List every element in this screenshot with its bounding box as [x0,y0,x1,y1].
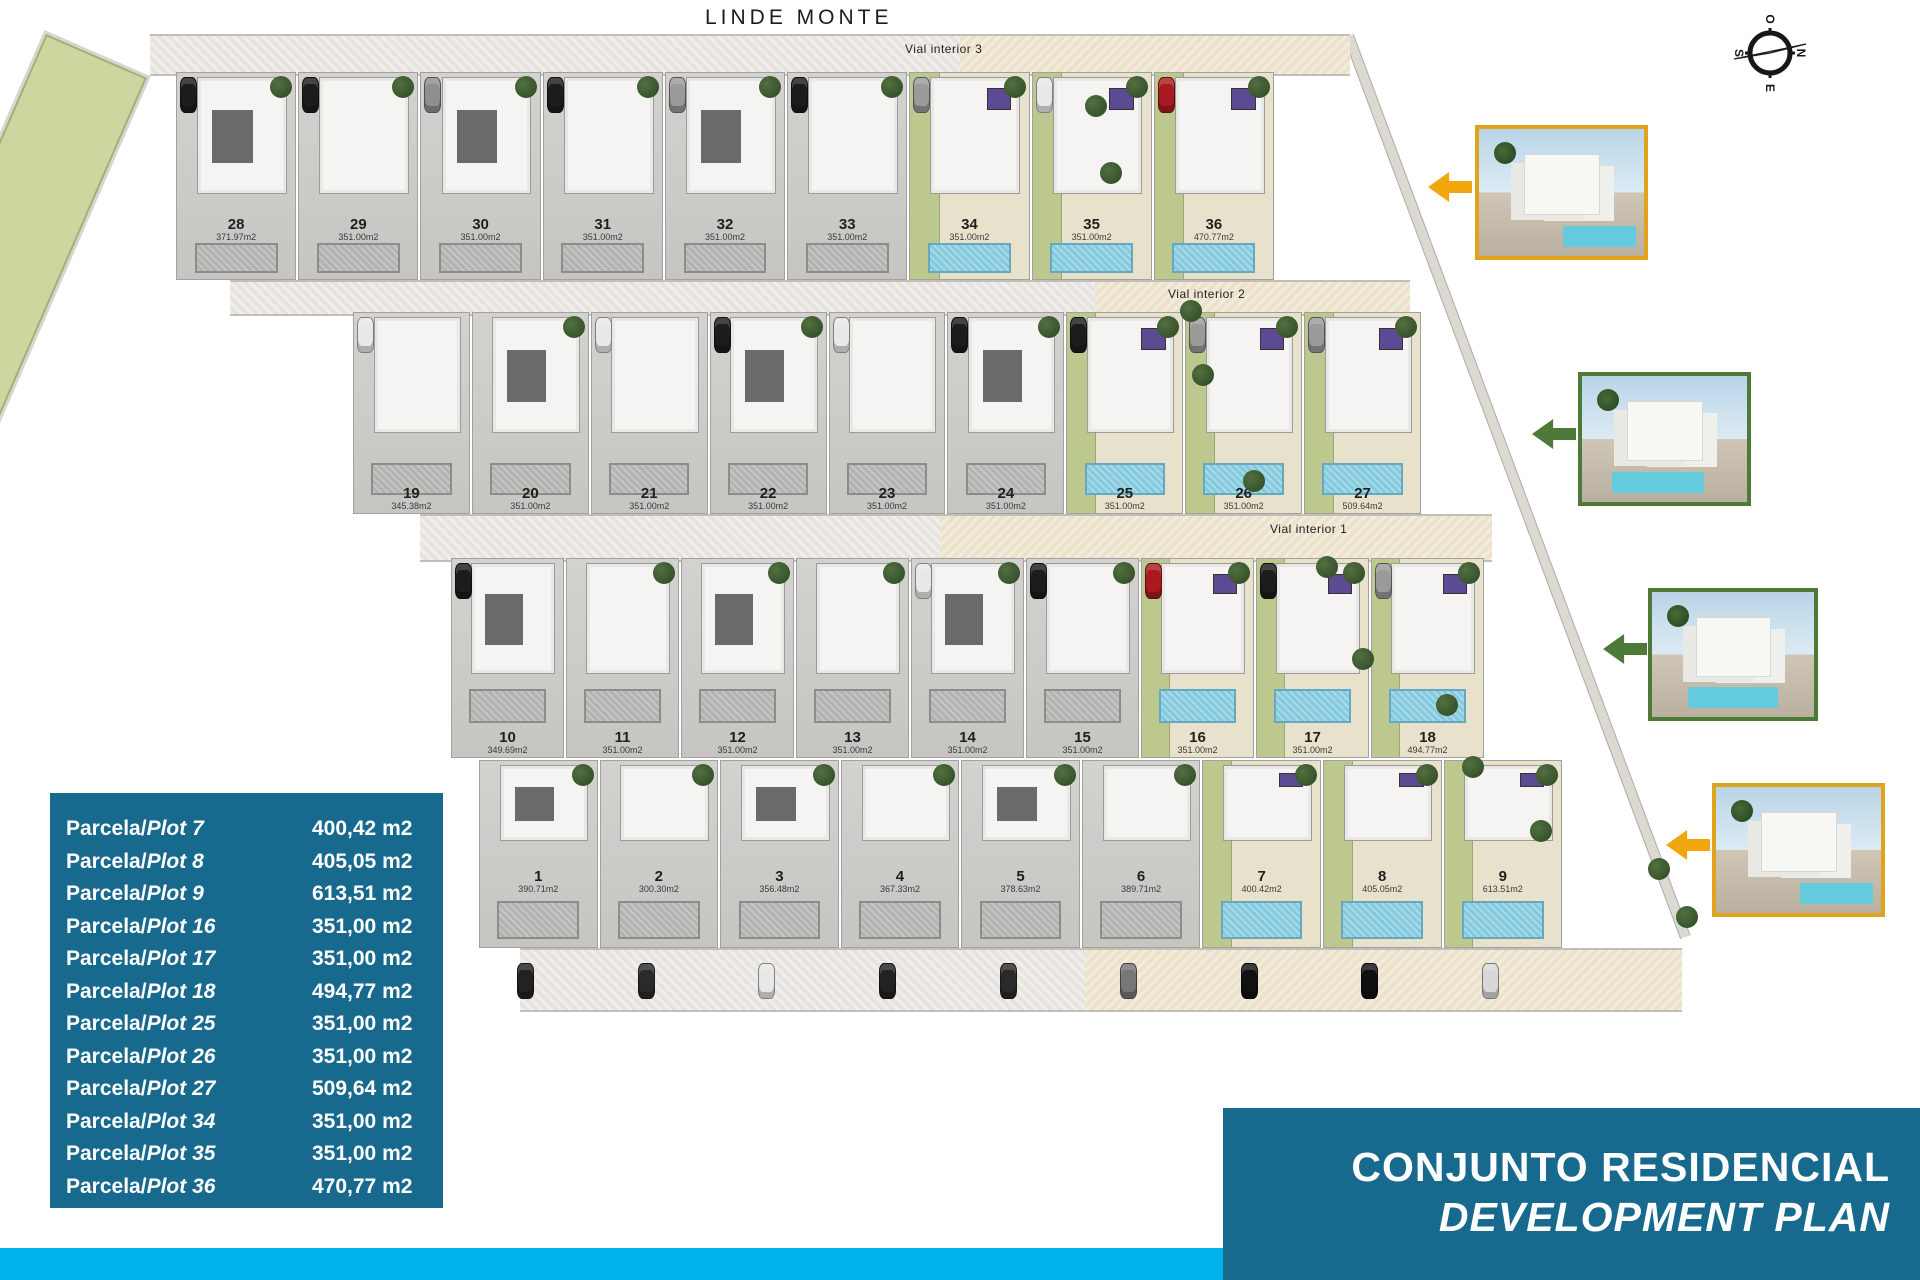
pool [684,243,767,273]
road-label-vial-2: Vial interior 2 [1168,287,1245,301]
plot-number: 28 [177,217,295,233]
car-icon [302,77,319,113]
tree-icon [1436,694,1458,716]
plot-label: 6389.71m2 [1083,869,1200,894]
tree-icon [1462,756,1484,778]
plot-4: 4367.33m2 [841,760,960,948]
pool [317,243,400,273]
legend-label-prefix: Parcela/ [66,947,147,970]
plot-area: 351.00m2 [1033,233,1151,242]
plot-number: 7 [1203,869,1320,885]
legend-label-plot: Plot 7 [147,817,204,840]
pool [980,901,1062,939]
plot-area: 389.71m2 [1083,885,1200,894]
tree-icon [1248,76,1270,98]
plot-area: 351.00m2 [948,502,1063,511]
pool [469,689,547,723]
tree-icon [653,562,675,584]
legend-row: Parcela/Plot 34 351,00 m2 [66,1106,443,1139]
plot-number: 12 [682,730,793,746]
legend-row: Parcela/Plot 17 351,00 m2 [66,943,443,976]
plot-number: 18 [1372,730,1483,746]
legend-area-value: 351,00 m2 [312,1041,412,1074]
plot-area: 351.00m2 [1257,746,1368,755]
plot-area: 300.30m2 [601,885,718,894]
legend-label-prefix: Parcela/ [66,1110,147,1133]
legend-area-value: 351,00 m2 [312,1106,412,1139]
plot-number: 26 [1186,486,1301,502]
car-icon [1189,317,1206,353]
tree-icon [1243,470,1265,492]
car-icon [1145,563,1162,599]
tree-icon [1648,858,1670,880]
legend-area-value: 494,77 m2 [312,976,412,1009]
svg-text:N: N [1794,49,1807,58]
plot-label: 1390.71m2 [480,869,597,894]
plot-10: 10349.69m2 [451,558,564,758]
plot-area: 351.00m2 [1142,746,1253,755]
plot-number: 35 [1033,217,1151,233]
svg-text:S: S [1733,49,1746,57]
road-top-beige [960,36,1350,74]
plot-area: 351.00m2 [1027,746,1138,755]
pool [806,243,889,273]
plot-label: 5378.63m2 [962,869,1079,894]
pool [1172,243,1255,273]
tree-icon [1530,820,1552,842]
legend-label-prefix: Parcela/ [66,850,147,873]
car-icon [791,77,808,113]
pool [1044,689,1122,723]
plot-number: 31 [544,217,662,233]
villa-house-shape [1696,617,1771,677]
plot-area: 613.51m2 [1445,885,1562,894]
plot-area: 400.42m2 [1203,885,1320,894]
car-icon [1036,77,1053,113]
plot-area: 367.33m2 [842,885,959,894]
tree-icon [1295,764,1317,786]
development-plan-canvas: LINDE MONTE O N E S Vial interior 3 Vial… [0,0,1920,1280]
plot-number: 23 [830,486,945,502]
tree-icon [1458,562,1480,584]
plot-label: 15351.00m2 [1027,730,1138,755]
plot-area: 351.00m2 [666,233,784,242]
legend-label-prefix: Parcela/ [66,882,147,905]
plot-area: 378.63m2 [962,885,1079,894]
plot-area: 351.00m2 [421,233,539,242]
pool [1221,901,1303,939]
house-footprint [611,317,698,433]
plot-32: 32351.00m2 [665,72,785,280]
pool [814,689,892,723]
plot-number: 24 [948,486,1063,502]
car-icon [1260,563,1277,599]
villa-house-shape [1761,812,1837,872]
plot-label: 12351.00m2 [682,730,793,755]
plot-label: 36470.77m2 [1155,217,1273,242]
plot-29: 29351.00m2 [298,72,418,280]
pool [584,689,662,723]
pool [497,901,579,939]
car-icon [547,77,564,113]
legend-area-value: 405,05 m2 [312,846,412,879]
tree-icon [1157,316,1179,338]
car-icon [1030,563,1047,599]
car-icon [1241,963,1258,999]
plot-20: 20351.00m2 [472,312,589,514]
plot-area: 351.00m2 [473,502,588,511]
legend-row: Parcela/Plot 27 509,64 m2 [66,1073,443,1106]
plot-number: 16 [1142,730,1253,746]
car-icon [638,963,655,999]
legend-row: Parcela/Plot 35 351,00 m2 [66,1138,443,1171]
plot-area: 351.00m2 [1067,502,1182,511]
plot-label: 16351.00m2 [1142,730,1253,755]
plot-row-1-9: 1390.71m22300.30m23356.48m24367.33m25378… [478,760,1563,948]
plot-label: 7400.42m2 [1203,869,1320,894]
pool [739,901,821,939]
plot-area: 351.00m2 [912,746,1023,755]
plot-16: 16351.00m2 [1141,558,1254,758]
plot-area: 345.38m2 [354,502,469,511]
plot-label: 9613.51m2 [1445,869,1562,894]
plot-area: 470.77m2 [1155,233,1273,242]
tree-icon [572,764,594,786]
plot-number: 8 [1324,869,1441,885]
road-label-vial-3: Vial interior 3 [905,42,982,56]
legend-row: Parcela/Plot 16 351,00 m2 [66,911,443,944]
plot-label: 27509.64m2 [1305,486,1420,511]
road-top [150,34,1350,76]
legend-row: Parcela/Plot 36 470,77 m2 [66,1171,443,1204]
plot-12: 12351.00m2 [681,558,794,758]
legend-label-plot: Plot 25 [147,1012,216,1035]
tree-icon [1004,76,1026,98]
plot-34: 34351.00m2 [909,72,1029,280]
plot-2: 2300.30m2 [600,760,719,948]
plot-11: 11351.00m2 [566,558,679,758]
legend-label-plot: Plot 8 [147,850,204,873]
legend-label-plot: Plot 35 [147,1142,216,1165]
car-icon [1361,963,1378,999]
legend-area-value: 351,00 m2 [312,943,412,976]
plot-label: 23351.00m2 [830,486,945,511]
plot-number: 22 [711,486,826,502]
compass-rose-icon: O N E S [1733,6,1807,103]
road-label-vial-1: Vial interior 1 [1270,522,1347,536]
car-icon [1070,317,1087,353]
plot-23: 23351.00m2 [829,312,946,514]
legend-label-plot: Plot 17 [147,947,216,970]
plot-6: 6389.71m2 [1082,760,1201,948]
car-icon [455,563,472,599]
plot-number: 20 [473,486,588,502]
car-icon [1375,563,1392,599]
road-bottom [520,948,1682,1012]
plot-number: 19 [354,486,469,502]
arrow-left-icon-2 [1532,419,1576,449]
plot-9: 9613.51m2 [1444,760,1563,948]
plot-25: 25351.00m2 [1066,312,1183,514]
tree-icon [801,316,823,338]
house-footprint [374,317,461,433]
plot-14: 14351.00m2 [911,558,1024,758]
plot-30: 30351.00m2 [420,72,540,280]
plot-number: 29 [299,217,417,233]
plot-number: 10 [452,730,563,746]
svg-text:E: E [1763,84,1777,92]
plot-number: 30 [421,217,539,233]
plot-36: 36470.77m2 [1154,72,1274,280]
plot-22: 22351.00m2 [710,312,827,514]
pool [1462,901,1544,939]
tree-icon [270,76,292,98]
title-line-spanish: CONJUNTO RESIDENCIAL [1223,1142,1890,1192]
road-vial-2-beige [1095,282,1410,314]
accent-strip [0,1248,1223,1280]
plot-area: 351.00m2 [910,233,1028,242]
car-icon [595,317,612,353]
plot-area: 405.05m2 [1324,885,1441,894]
plot-label: 26351.00m2 [1186,486,1301,511]
car-icon [1482,963,1499,999]
plot-number: 33 [788,217,906,233]
plot-label: 25351.00m2 [1067,486,1182,511]
plot-number: 21 [592,486,707,502]
plot-number: 15 [1027,730,1138,746]
plot-area: 351.00m2 [797,746,908,755]
plot-label: 28371.97m2 [177,217,295,242]
plot-label: 17351.00m2 [1257,730,1368,755]
road-bottom-beige [1085,950,1682,1010]
legend-label-plot: Plot 9 [147,882,204,905]
tree-icon [1395,316,1417,338]
plot-number: 17 [1257,730,1368,746]
house-footprint [849,317,936,433]
legend-row: Parcela/Plot 18 494,77 m2 [66,976,443,1009]
car-icon [833,317,850,353]
svg-text:O: O [1763,14,1777,23]
plot-label: 14351.00m2 [912,730,1023,755]
plot-label: 22351.00m2 [711,486,826,511]
legend-area-value: 613,51 m2 [312,878,412,911]
tree-icon [1113,562,1135,584]
plot-number: 2 [601,869,718,885]
plot-area: 351.00m2 [299,233,417,242]
legend-label-prefix: Parcela/ [66,980,147,1003]
arrow-left-icon-1 [1428,172,1472,202]
plot-row-10-18: 10349.69m211351.00m212351.00m213351.00m2… [450,558,1485,758]
tree-icon [933,764,955,786]
tree-icon [1276,316,1298,338]
pool [699,689,777,723]
plot-number: 27 [1305,486,1420,502]
tree-icon [759,76,781,98]
plot-label: 4367.33m2 [842,869,959,894]
villa-photo-3 [1648,588,1818,721]
tree-icon [563,316,585,338]
tree-icon [1192,364,1214,386]
plot-number: 1 [480,869,597,885]
plot-label: 8405.05m2 [1324,869,1441,894]
plot-area: 351.00m2 [544,233,662,242]
plot-label: 19345.38m2 [354,486,469,511]
plot-15: 15351.00m2 [1026,558,1139,758]
plot-area: 351.00m2 [567,746,678,755]
legend-area-value: 470,77 m2 [312,1171,412,1204]
car-icon [1158,77,1175,113]
plot-label: 10349.69m2 [452,730,563,755]
plot-label: 24351.00m2 [948,486,1063,511]
plot-label: 29351.00m2 [299,217,417,242]
car-icon [879,963,896,999]
plot-5: 5378.63m2 [961,760,1080,948]
tree-icon [1316,556,1338,578]
plot-label: 21351.00m2 [592,486,707,511]
plot-8: 8405.05m2 [1323,760,1442,948]
pool [1100,901,1182,939]
car-icon [357,317,374,353]
car-icon [758,963,775,999]
pool [561,243,644,273]
tree-icon [1343,562,1365,584]
car-icon [714,317,731,353]
tree-icon [1416,764,1438,786]
legend-area-value: 509,64 m2 [312,1073,412,1106]
plot-label: 31351.00m2 [544,217,662,242]
tree-icon [1126,76,1148,98]
legend-label-plot: Plot 27 [147,1077,216,1100]
plot-area: 351.00m2 [830,502,945,511]
palm-tree-icon [1494,142,1516,164]
tree-icon [1038,316,1060,338]
tree-icon [881,76,903,98]
palm-tree-icon [1731,800,1753,822]
car-icon [1308,317,1325,353]
tree-icon [637,76,659,98]
green-boundary-strip [0,34,147,815]
tree-icon [1174,764,1196,786]
plot-label: 30351.00m2 [421,217,539,242]
legend-label-plot: Plot 34 [147,1110,216,1133]
pool-shape [1563,226,1636,248]
plot-label: 34351.00m2 [910,217,1028,242]
palm-tree-icon [1667,605,1689,627]
plot-33: 33351.00m2 [787,72,907,280]
plot-number: 32 [666,217,784,233]
plot-area: 371.97m2 [177,233,295,242]
plot-number: 5 [962,869,1079,885]
pool [195,243,278,273]
palm-tree-icon [1597,389,1619,411]
plot-area: 494.77m2 [1372,746,1483,755]
plot-label: 13351.00m2 [797,730,908,755]
plot-28: 28371.97m2 [176,72,296,280]
legend-row: Parcela/Plot 26 351,00 m2 [66,1041,443,1074]
villa-photo-2 [1578,372,1751,506]
plot-31: 31351.00m2 [543,72,663,280]
car-icon [180,77,197,113]
site-title: LINDE MONTE [705,6,893,30]
villa-photo-1 [1475,125,1648,260]
legend-label-prefix: Parcela/ [66,817,147,840]
car-icon [1000,963,1017,999]
plot-area: 351.00m2 [592,502,707,511]
plot-area: 351.00m2 [682,746,793,755]
plot-area: 390.71m2 [480,885,597,894]
plot-area: 351.00m2 [711,502,826,511]
pool [1050,243,1133,273]
pool [859,901,941,939]
pool [929,689,1007,723]
plot-number: 3 [721,869,838,885]
plot-label: 2300.30m2 [601,869,718,894]
plot-area: 356.48m2 [721,885,838,894]
plot-24: 24351.00m2 [947,312,1064,514]
pool [439,243,522,273]
plot-13: 13351.00m2 [796,558,909,758]
plot-area: 351.00m2 [1186,502,1301,511]
arrow-left-icon-3 [1603,634,1647,664]
car-icon [517,963,534,999]
tree-icon [392,76,414,98]
plot-21: 21351.00m2 [591,312,708,514]
legend-area-value: 351,00 m2 [312,1138,412,1171]
legend-label-prefix: Parcela/ [66,1175,147,1198]
tree-icon [1228,562,1250,584]
plot-number: 36 [1155,217,1273,233]
pool [928,243,1011,273]
tree-icon [813,764,835,786]
plot-7: 7400.42m2 [1202,760,1321,948]
plot-number: 11 [567,730,678,746]
plot-number: 4 [842,869,959,885]
villa-house-shape [1627,401,1703,461]
tree-icon [1085,95,1107,117]
pool [618,901,700,939]
tree-icon [515,76,537,98]
plot-number: 6 [1083,869,1200,885]
legend-label-plot: Plot 18 [147,980,216,1003]
legend-label-plot: Plot 26 [147,1045,216,1068]
pool-shape [1688,687,1779,708]
plot-label: 20351.00m2 [473,486,588,511]
legend-label-prefix: Parcela/ [66,1045,147,1068]
tree-icon [883,562,905,584]
pool [1341,901,1423,939]
villa-photo-4 [1712,783,1885,917]
car-icon [669,77,686,113]
pool [1159,689,1237,723]
title-block: CONJUNTO RESIDENCIAL DEVELOPMENT PLAN [1223,1108,1920,1280]
plot-number: 13 [797,730,908,746]
tree-icon [692,764,714,786]
legend-label-prefix: Parcela/ [66,1077,147,1100]
tree-icon [768,562,790,584]
plot-number: 25 [1067,486,1182,502]
plot-area: 509.64m2 [1305,502,1420,511]
pool-shape [1800,883,1873,904]
plot-number: 9 [1445,869,1562,885]
tree-icon [1054,764,1076,786]
plot-number: 14 [912,730,1023,746]
plot-legend: Parcela/Plot 7 400,42 m2 Parcela/Plot 8 … [50,793,443,1208]
plot-label: 32351.00m2 [666,217,784,242]
car-icon [951,317,968,353]
plot-area: 351.00m2 [788,233,906,242]
legend-row: Parcela/Plot 9 613,51 m2 [66,878,443,911]
legend-label-prefix: Parcela/ [66,1142,147,1165]
